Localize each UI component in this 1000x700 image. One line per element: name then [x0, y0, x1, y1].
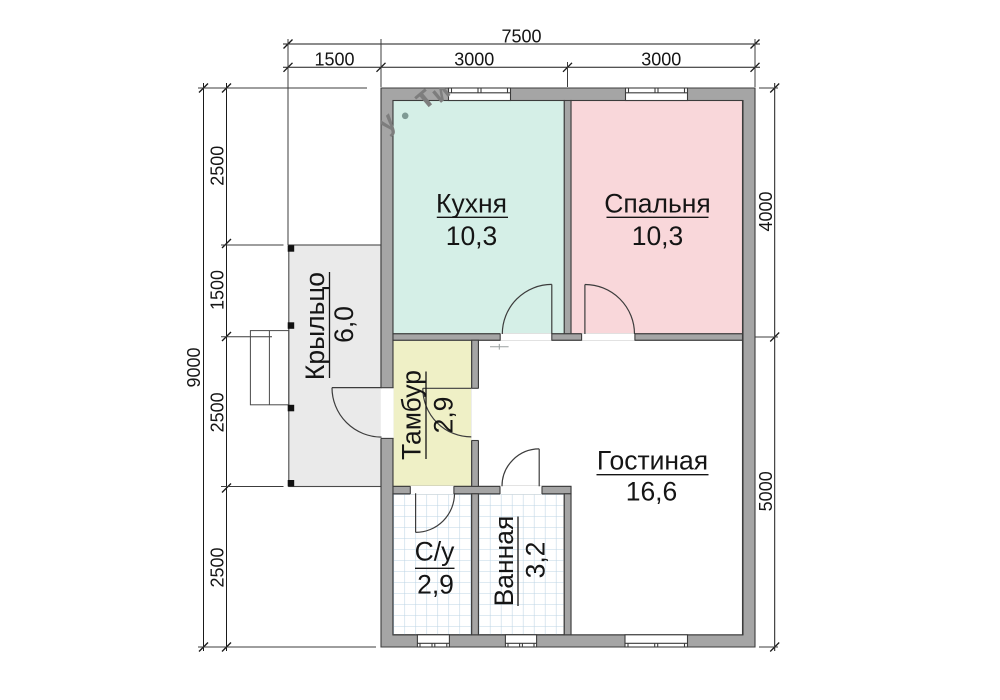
svg-text:16,6: 16,6 [626, 477, 678, 507]
svg-text:2,9: 2,9 [429, 397, 459, 434]
svg-text:7500: 7500 [501, 26, 541, 46]
svg-text:Кухня: Кухня [436, 189, 507, 219]
svg-text:10,3: 10,3 [632, 221, 684, 251]
svg-text:2500: 2500 [208, 547, 228, 587]
svg-text:1500: 1500 [208, 270, 228, 310]
svg-text:6,0: 6,0 [329, 306, 359, 343]
svg-text:Тамбур: Тамбур [397, 370, 427, 460]
svg-text:2,9: 2,9 [417, 570, 454, 600]
svg-text:2500: 2500 [208, 146, 228, 186]
svg-text:5000: 5000 [756, 471, 776, 511]
svg-text:Крыльцо: Крыльцо [300, 272, 330, 380]
svg-text:Спальня: Спальня [604, 189, 710, 219]
svg-text:3000: 3000 [454, 50, 494, 70]
svg-text:Ванная: Ванная [489, 516, 519, 607]
svg-text:3000: 3000 [641, 50, 681, 70]
svg-text:10,3: 10,3 [446, 221, 498, 251]
svg-text:Гостиная: Гостиная [597, 446, 708, 476]
svg-text:С/у: С/у [415, 537, 456, 567]
svg-text:2500: 2500 [208, 392, 228, 432]
svg-text:3,2: 3,2 [521, 542, 551, 579]
svg-text:4000: 4000 [756, 191, 776, 231]
svg-text:1500: 1500 [314, 50, 354, 70]
svg-text:9000: 9000 [184, 347, 204, 387]
